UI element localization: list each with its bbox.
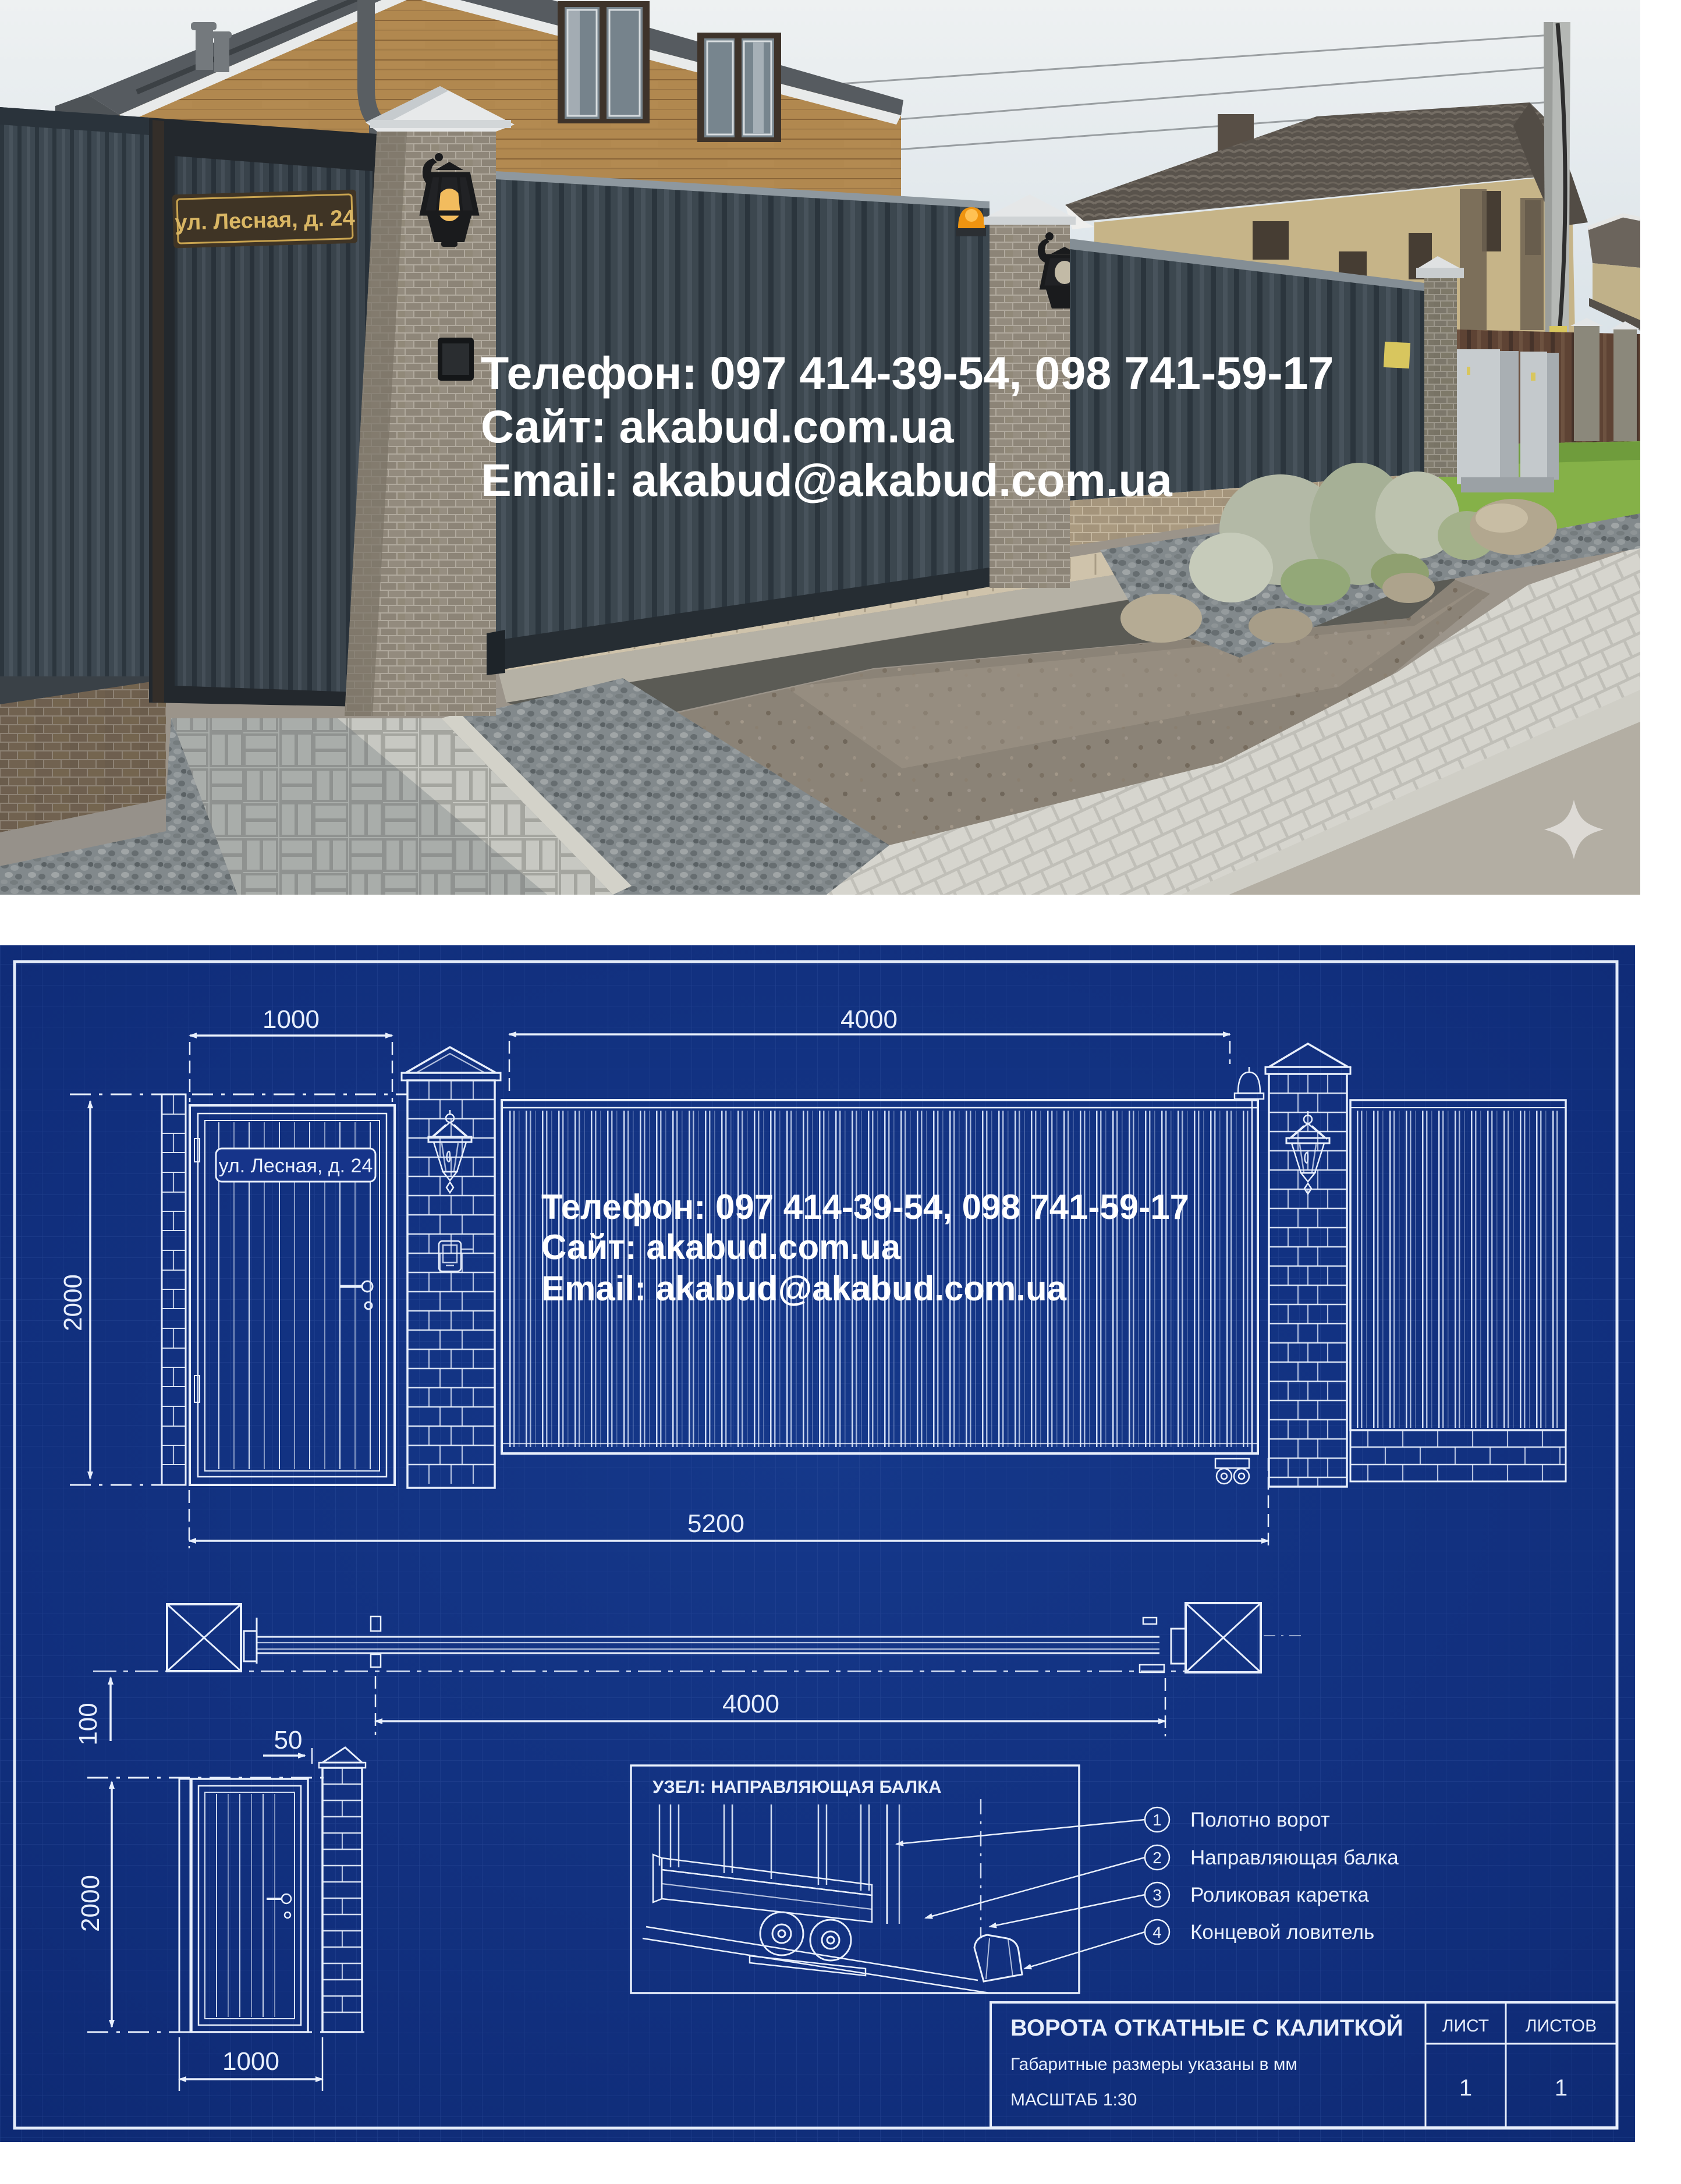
svg-text:Email: akabud@akabud.com.ua: Email: akabud@akabud.com.ua xyxy=(541,1269,1067,1308)
svg-text:5200: 5200 xyxy=(687,1509,744,1538)
svg-text:100: 100 xyxy=(74,1703,102,1745)
svg-text:Роликовая каретка: Роликовая каретка xyxy=(1190,1884,1369,1906)
svg-text:ул. Лесная, д. 24: ул. Лесная, д. 24 xyxy=(219,1155,373,1177)
svg-text:ул. Лесная, д. 24: ул. Лесная, д. 24 xyxy=(175,206,355,236)
svg-text:4000: 4000 xyxy=(722,1690,779,1718)
svg-text:Направляющая балка: Направляющая балка xyxy=(1190,1846,1399,1869)
svg-text:Полотно ворот: Полотно ворот xyxy=(1190,1809,1330,1831)
svg-text:1: 1 xyxy=(1555,2075,1567,2101)
svg-text:4000: 4000 xyxy=(840,1005,898,1034)
svg-text:Телефон: 097 414-39-54, 098 74: Телефон: 097 414-39-54, 098 741-59-17 xyxy=(481,347,1334,399)
svg-text:Телефон: 097 414-39-54, 098 74: Телефон: 097 414-39-54, 098 741-59-17 xyxy=(541,1187,1189,1226)
svg-text:ЛИСТОВ: ЛИСТОВ xyxy=(1526,2016,1597,2036)
svg-text:1000: 1000 xyxy=(222,2047,279,2076)
svg-text:Концевой ловитель: Концевой ловитель xyxy=(1190,1921,1374,1944)
svg-text:1: 1 xyxy=(1459,2075,1472,2101)
svg-text:ЛИСТ: ЛИСТ xyxy=(1442,2016,1489,2036)
svg-text:ВОРОТА ОТКАТНЫЕ С КАЛИТКОЙ: ВОРОТА ОТКАТНЫЕ С КАЛИТКОЙ xyxy=(1010,2014,1403,2041)
svg-text:1000: 1000 xyxy=(263,1005,320,1034)
svg-text:Сайт: akabud.com.ua: Сайт: akabud.com.ua xyxy=(481,400,955,452)
svg-text:50: 50 xyxy=(274,1726,303,1754)
svg-text:3: 3 xyxy=(1152,1886,1162,1904)
svg-text:1: 1 xyxy=(1152,1811,1162,1829)
svg-text:2000: 2000 xyxy=(59,1274,87,1331)
svg-text:2: 2 xyxy=(1152,1849,1162,1867)
svg-text:УЗЕЛ: НАПРАВЛЯЮЩАЯ БАЛКА: УЗЕЛ: НАПРАВЛЯЮЩАЯ БАЛКА xyxy=(652,1777,941,1797)
svg-text:4: 4 xyxy=(1152,1923,1162,1941)
svg-text:Габаритные размеры указаны в м: Габаритные размеры указаны в мм xyxy=(1010,2055,1297,2074)
svg-text:2000: 2000 xyxy=(76,1875,105,1932)
svg-text:Email: akabud@akabud.com.ua: Email: akabud@akabud.com.ua xyxy=(481,454,1173,506)
svg-text:Сайт: akabud.com.ua: Сайт: akabud.com.ua xyxy=(541,1228,901,1267)
svg-text:МАСШТАБ 1:30: МАСШТАБ 1:30 xyxy=(1010,2090,1137,2109)
